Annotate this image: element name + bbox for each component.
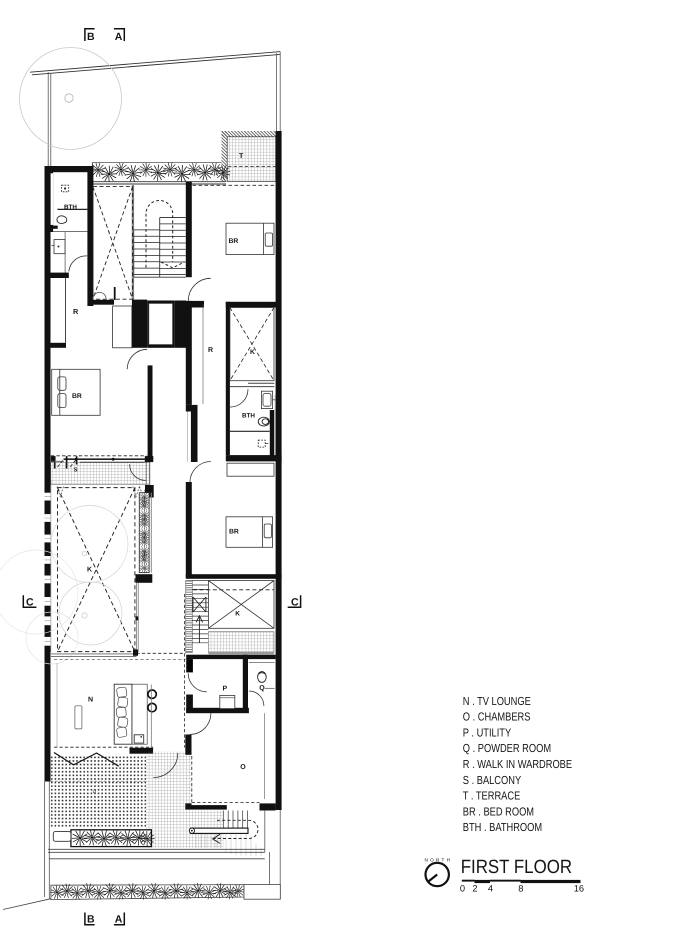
svg-text:BR: BR: [72, 393, 82, 400]
svg-text:P: P: [223, 686, 228, 693]
svg-text:8: 8: [518, 883, 523, 893]
svg-text:B: B: [87, 914, 95, 926]
svg-text:A: A: [115, 914, 123, 926]
svg-text:BR: BR: [229, 238, 239, 245]
svg-text:U: U: [93, 789, 97, 795]
svg-text:S . BALCONY: S . BALCONY: [463, 774, 522, 787]
svg-text:BTH: BTH: [242, 413, 255, 420]
svg-text:N: N: [88, 696, 93, 703]
svg-text:T: T: [239, 153, 244, 160]
svg-text:BR . BED ROOM: BR . BED ROOM: [463, 805, 534, 818]
svg-text:NORTH: NORTH: [425, 858, 453, 863]
svg-text:FIRST FLOOR: FIRST FLOOR: [461, 857, 572, 878]
svg-text:Q . POWDER ROOM: Q . POWDER ROOM: [463, 742, 551, 755]
svg-text:Q: Q: [259, 685, 265, 692]
svg-text:C: C: [26, 597, 34, 609]
svg-text:4: 4: [488, 883, 493, 893]
svg-text:BR: BR: [229, 529, 239, 536]
svg-text:T . TERRACE: T . TERRACE: [463, 790, 521, 803]
svg-text:B: B: [87, 31, 95, 43]
svg-text:R . WALK IN WARDROBE: R . WALK IN WARDROBE: [463, 758, 572, 771]
svg-text:BTH . BATHROOM: BTH . BATHROOM: [463, 821, 542, 834]
svg-text:K: K: [87, 567, 92, 574]
svg-text:R: R: [208, 347, 213, 354]
svg-text:N . TV LOUNGE: N . TV LOUNGE: [463, 695, 531, 708]
svg-text:P . UTILITY: P . UTILITY: [463, 726, 512, 739]
svg-text:2: 2: [472, 883, 477, 893]
svg-text:O: O: [240, 764, 246, 771]
svg-text:K: K: [235, 610, 240, 617]
svg-text:16: 16: [574, 883, 584, 893]
svg-text:A: A: [115, 31, 123, 43]
svg-text:R: R: [73, 307, 79, 316]
svg-text:C: C: [291, 597, 299, 609]
svg-text:O . CHAMBERS: O . CHAMBERS: [463, 711, 531, 724]
svg-text:0: 0: [460, 883, 465, 893]
svg-text:K: K: [250, 349, 255, 356]
